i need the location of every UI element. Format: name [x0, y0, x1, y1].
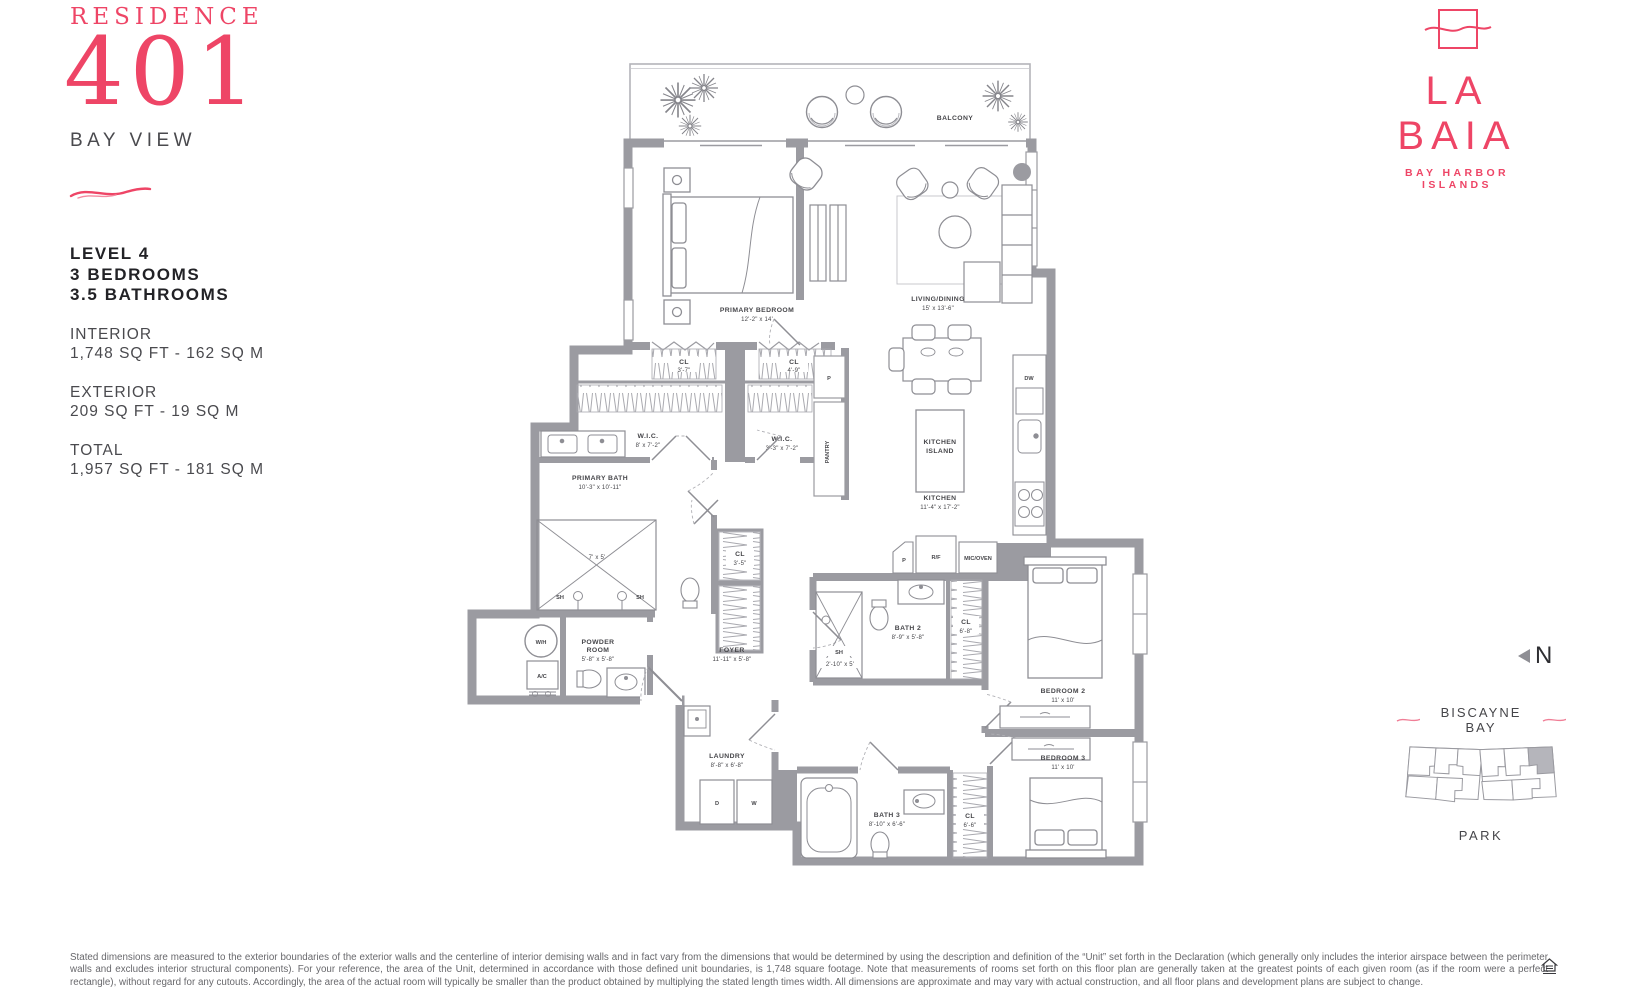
unit-facts: LEVEL 4 3 BEDROOMS 3.5 BATHROOMS INTERIO…: [70, 244, 400, 480]
wave-dash-icon: [1542, 716, 1566, 724]
bath3-dim: 8'-10" x 6'-6": [869, 822, 905, 828]
primary-bath-label: PRIMARY BATH: [572, 475, 628, 482]
balcony-label: BALCONY: [937, 115, 973, 122]
wic1-dim: 8' x 7'-2": [636, 443, 661, 449]
bedroom2-label: BEDROOM 2: [1041, 688, 1086, 695]
brand-name: LA BAIA: [1377, 69, 1537, 159]
living-furniture: [810, 163, 1032, 303]
brand-tagline: BAY HARBOR ISLANDS: [1377, 167, 1537, 191]
utility-closet: [525, 625, 558, 697]
equal-housing-icon: [1541, 958, 1558, 975]
bathrooms-label: 3.5 BATHROOMS: [70, 285, 400, 306]
wave-dash-icon: [1396, 716, 1420, 724]
balcony-sliders: [664, 136, 1026, 150]
total-label: TOTAL: [70, 441, 400, 461]
site-keyplan: [1392, 733, 1570, 829]
cl-bed3-label: CL: [965, 813, 975, 820]
primary-bed: [663, 168, 793, 324]
entry-door: [640, 667, 682, 705]
bedroom2-dim: 11' x 10': [1051, 698, 1074, 704]
cl-hall-label: CL: [735, 551, 745, 558]
powder-room-l1: POWDER: [582, 639, 615, 646]
laundry-dim: 8'-8" x 6'-8": [711, 763, 744, 769]
dw-label: DW: [1024, 376, 1034, 382]
interior-label: INTERIOR: [70, 325, 400, 345]
kitchen-island-l2: ISLAND: [926, 448, 954, 455]
bed2: [1024, 557, 1106, 678]
living-dining-dim: 15' x 13'-6": [922, 306, 954, 312]
p2-label: P: [902, 558, 906, 564]
pantry: P PANTRY: [814, 356, 845, 496]
wh-label: W/H: [536, 640, 547, 646]
labaia-wave-square-icon: [1421, 6, 1493, 56]
shower-sh-label: SH: [636, 595, 644, 601]
disclaimer-text: Stated dimensions are measured to the ex…: [70, 952, 1548, 989]
cl2-dim: 4'-9": [788, 368, 801, 374]
kitchen-island-l1: KITCHEN: [923, 439, 956, 446]
primary-bath-dim: 10'-3" x 10'-11": [579, 485, 622, 491]
bath3: [801, 778, 944, 858]
cl-bed3-dim: 6'-6": [964, 823, 977, 829]
ac-label: A/C: [537, 674, 547, 680]
dryer-label: D: [715, 801, 719, 807]
laundry-label: LAUNDRY: [709, 753, 745, 760]
bedroom3-dim: 11' x 10': [1051, 765, 1074, 771]
wic1-label: W.I.C.: [638, 433, 659, 440]
balcony: BALCONY: [630, 64, 1030, 140]
living-dining-label: LIVING/DINING: [911, 296, 965, 303]
exterior-label: EXTERIOR: [70, 383, 400, 403]
residence-number: 401: [64, 26, 261, 120]
kitchen-label: KITCHEN: [923, 495, 956, 502]
washer-label: W: [751, 801, 757, 807]
brand-logo: LA BAIA BAY HARBOR ISLANDS: [1377, 6, 1537, 191]
bath2-sh-label: SH: [835, 650, 843, 656]
kitchen-appliance-row: [893, 536, 997, 573]
mic-oven-label: MIC/OVEN: [964, 556, 992, 562]
bath2-dim: 8'-9" x 5'-8": [892, 635, 925, 641]
dining-table: [889, 325, 981, 394]
biscayne-bay-label: BISCAYNE BAY: [1396, 705, 1566, 735]
north-arrow-icon: [1516, 647, 1532, 665]
pink-swoosh-divider: [68, 182, 154, 204]
compass: N: [1516, 642, 1552, 670]
bath3-label: BATH 3: [874, 812, 900, 819]
bed3: [1026, 778, 1106, 858]
biscayne-bay-text: BISCAYNE BAY: [1428, 705, 1535, 735]
pantry-p-label: P: [827, 376, 831, 382]
compass-n: N: [1535, 642, 1552, 670]
floorplan-brochure-page: RESIDENCE 401 BAY VIEW LEVEL 4 3 BEDROOM…: [0, 0, 1651, 1000]
cl1-label: CL: [679, 359, 689, 366]
cl-bed2-label: CL: [961, 619, 971, 626]
interior-value: 1,748 SQ FT - 162 SQ M: [70, 344, 400, 364]
primary-bedroom-dim: 12'-2" x 14': [741, 317, 773, 323]
foyer-label: FOYER: [719, 647, 744, 654]
kitchen-dim: 11'-4" x 17'-2": [920, 505, 959, 511]
cl2-label: CL: [789, 359, 799, 366]
level-label: LEVEL 4: [70, 244, 400, 265]
cl-bed2-dim: 6'-8": [960, 629, 973, 635]
exterior-value: 209 SQ FT - 19 SQ M: [70, 402, 400, 422]
powder-room-l2: ROOM: [587, 647, 610, 654]
rf-label: R/F: [931, 555, 941, 561]
pantry-label: PANTRY: [825, 441, 831, 464]
powder-room-dim: 5'-8" x 5'-8": [582, 657, 615, 663]
cl-hall-dim: 3'-5": [734, 561, 747, 567]
foyer-dim: 11'-11" x 5'-8": [712, 657, 751, 663]
bath2-label: BATH 2: [895, 625, 921, 632]
shower-sh-label: SH: [556, 595, 564, 601]
primary-bedroom-label: PRIMARY BEDROOM: [720, 307, 794, 314]
bath2-sh-dim: 2'-10" x 5': [826, 662, 854, 668]
shower-dim: 7' x 5': [589, 555, 606, 561]
bedroom3-label: BEDROOM 3: [1041, 755, 1086, 762]
floorplan-drawing: BALCONY: [440, 50, 1160, 880]
total-value: 1,957 SQ FT - 181 SQ M: [70, 460, 400, 480]
bedroom-armchair: [786, 154, 825, 193]
bedrooms-label: 3 BEDROOMS: [70, 265, 400, 286]
cl1-dim: 3'-7": [678, 368, 691, 374]
park-label: PARK: [1396, 828, 1566, 843]
view-label: BAY VIEW: [70, 130, 196, 152]
powder-room: [577, 668, 645, 697]
